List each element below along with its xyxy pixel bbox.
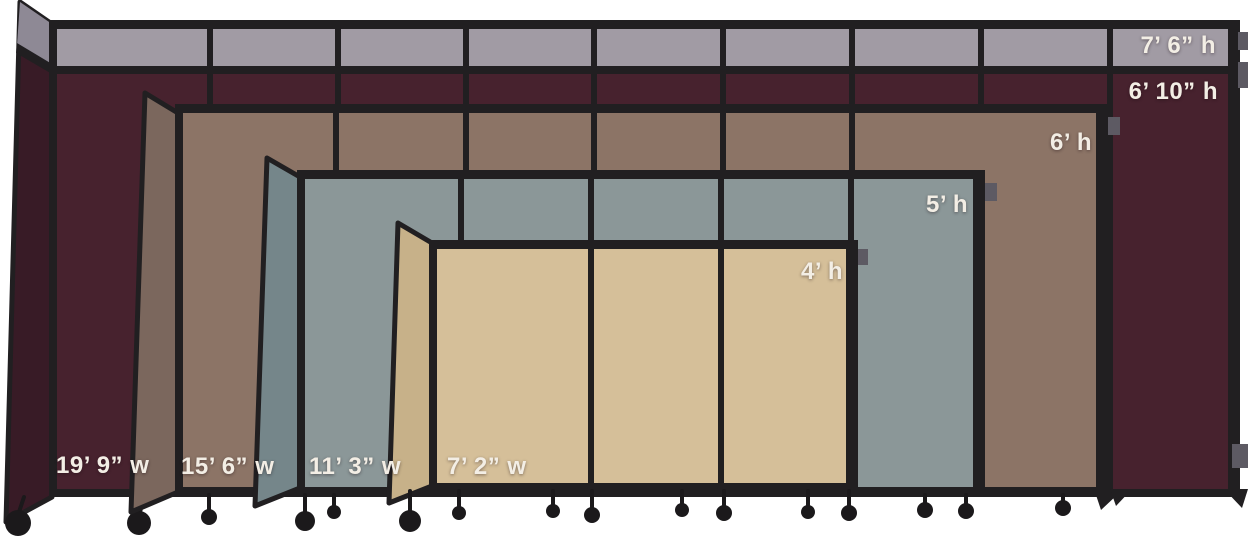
height-label-6ft: 6’ h — [992, 129, 1092, 157]
width-label-7ft2: 7’ 2” w — [447, 453, 527, 481]
caster-wheel — [201, 509, 217, 525]
height-label-6ft10: 6’ 10” h — [1066, 78, 1218, 106]
height-label-4ft: 4’ h — [743, 258, 843, 286]
top-frame-bar — [175, 104, 1108, 113]
caster-wheel — [1055, 500, 1071, 516]
width-label-15ft6: 15’ 6” w — [181, 453, 274, 481]
wall-bracket — [1108, 117, 1120, 135]
wall-bracket — [1238, 32, 1248, 50]
width-label-11ft3: 11’ 3” w — [309, 453, 401, 481]
casters — [399, 491, 857, 532]
top-frame-bar — [50, 20, 1240, 29]
return-panel — [6, 2, 52, 522]
caster-wheel — [675, 503, 689, 517]
caster-wheel — [841, 505, 857, 521]
cap-frame-bar — [52, 66, 1238, 74]
foot-bracket — [1096, 495, 1117, 510]
caster-wheel — [295, 511, 315, 531]
caster-wheel — [801, 505, 815, 519]
caster-wheel — [327, 505, 341, 519]
caster-wheel — [584, 507, 600, 523]
caster-wheel — [5, 510, 31, 536]
top-cap-panel — [52, 29, 1238, 66]
caster-wheel — [546, 504, 560, 518]
room-divider-size-comparison: 7’ 6” h 6’ 10” h 6’ h 5’ h 4’ h 19’ 9” w… — [0, 0, 1248, 542]
caster-wheel — [716, 505, 732, 521]
top-frame-bar — [429, 240, 858, 249]
caster-wheel — [452, 506, 466, 520]
top-frame-bar — [297, 170, 985, 179]
caster-wheel — [958, 503, 974, 519]
wall-bracket — [985, 183, 997, 201]
width-label-19ft9: 19’ 9” w — [56, 452, 149, 480]
wall-bracket — [1238, 62, 1248, 88]
wall-bracket — [1232, 444, 1248, 468]
caster-wheel — [127, 511, 151, 535]
wall-bracket — [858, 249, 868, 265]
height-label-7ft6: 7’ 6” h — [1076, 32, 1216, 60]
height-label-5ft: 5’ h — [868, 191, 968, 219]
foot-bracket — [1224, 489, 1248, 508]
bottom-frame-bar — [429, 483, 858, 491]
caster-wheel — [399, 510, 421, 532]
caster-wheel — [917, 502, 933, 518]
